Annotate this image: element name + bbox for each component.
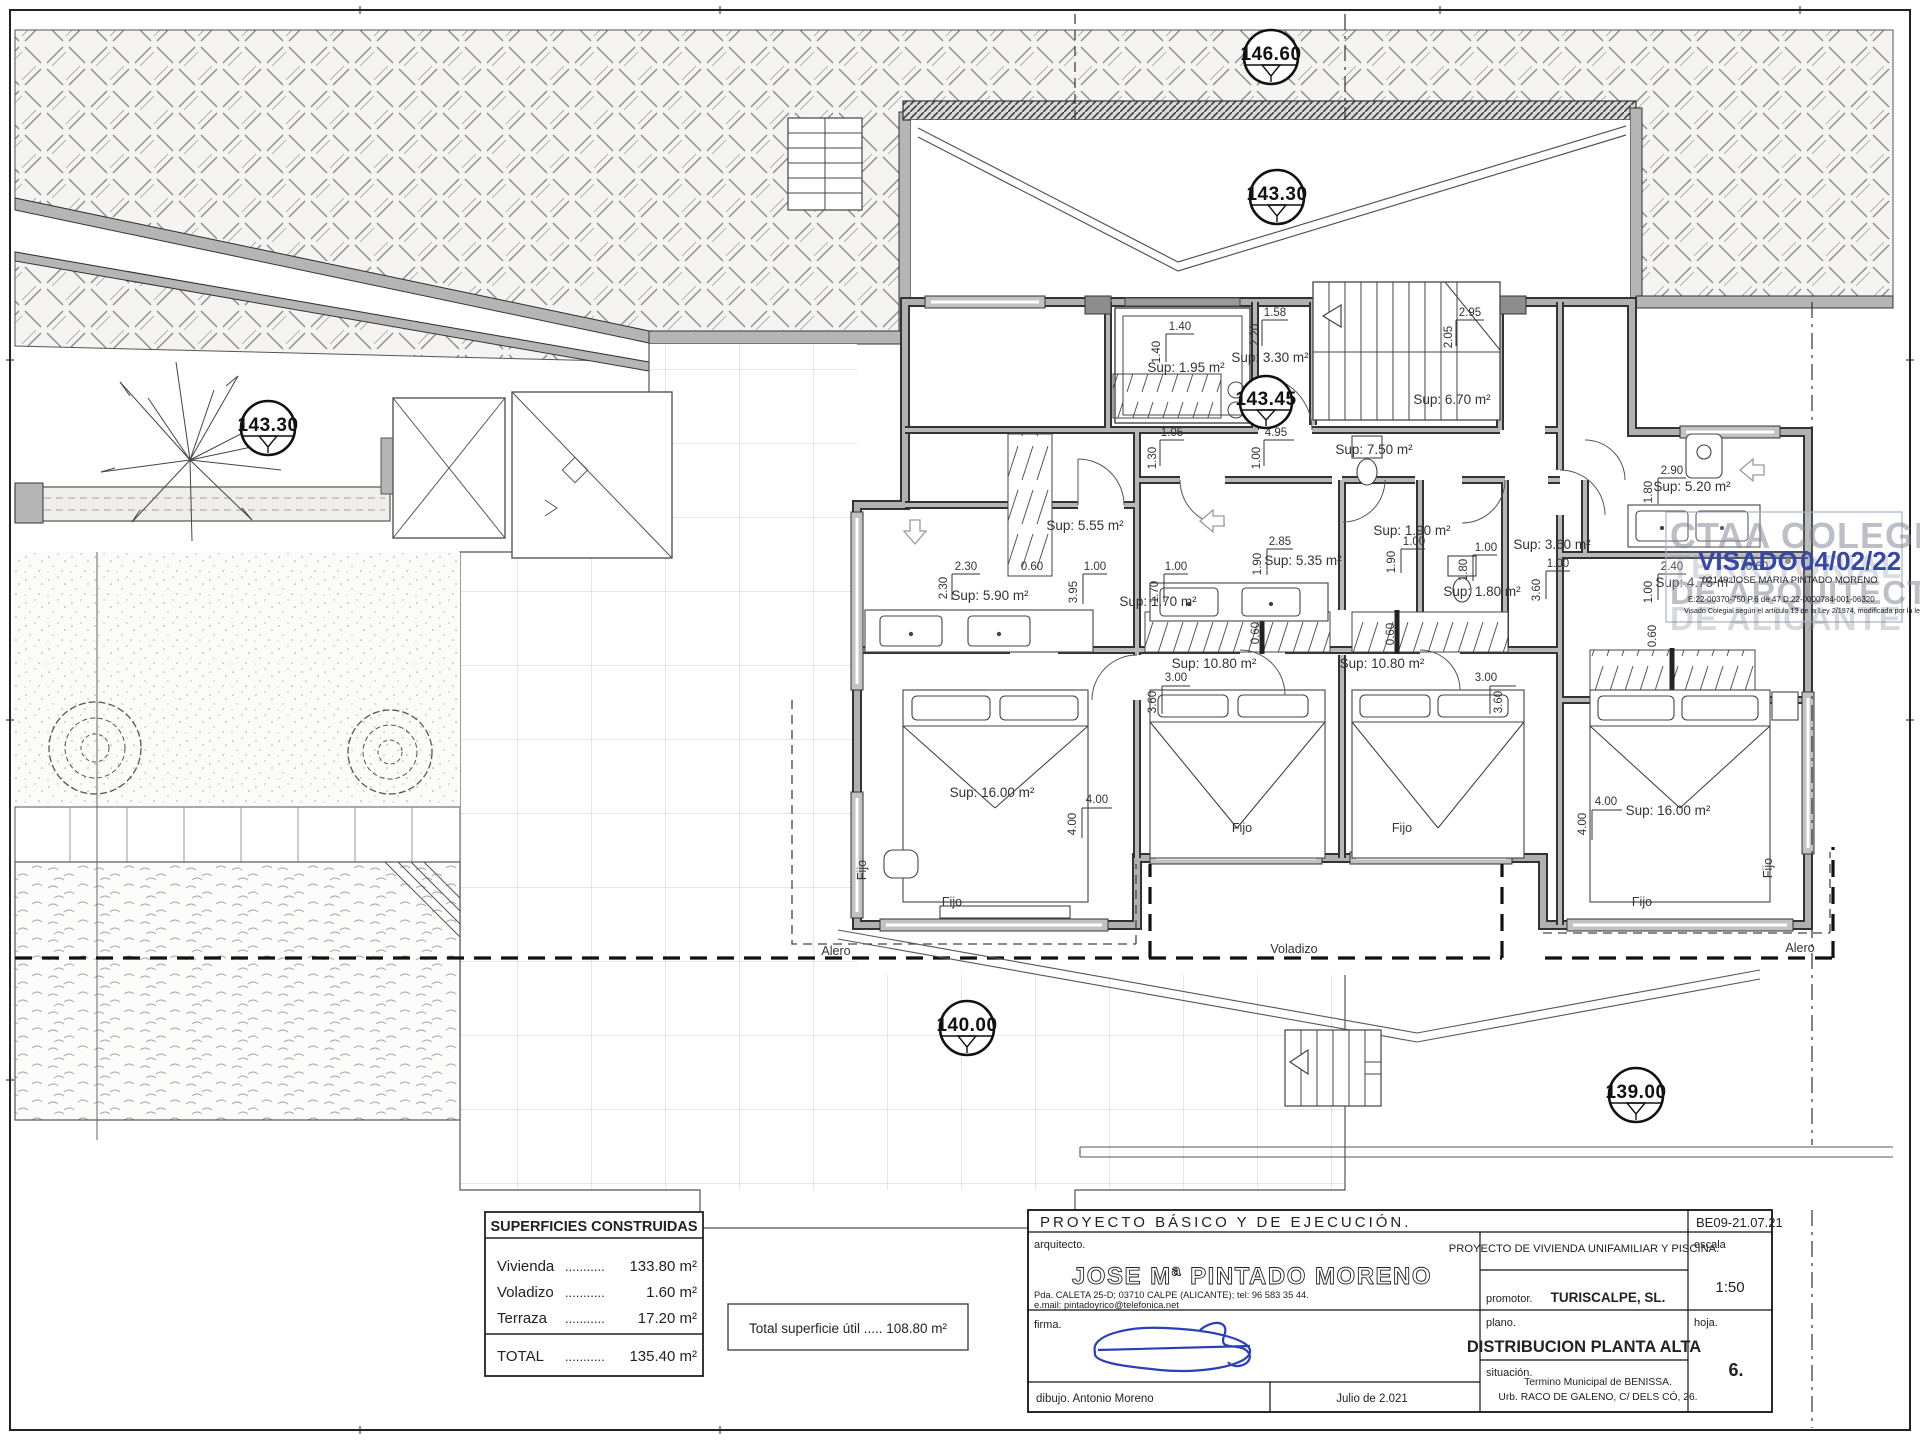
visado-date: 04/02/22 xyxy=(1800,546,1901,576)
surfaces-row-value: 133.80 m² xyxy=(629,1258,697,1275)
voladizo-label: Voladizo xyxy=(1270,942,1317,956)
fijo-label: Fijo xyxy=(1761,858,1775,878)
alero-label: Alero xyxy=(1785,941,1814,955)
project-code: BE09-21.07.21 xyxy=(1696,1215,1783,1230)
promoter-name: TURISCALPE, SL. xyxy=(1551,1290,1666,1305)
surfaces-total-value: 135.40 m² xyxy=(629,1348,697,1365)
room-label: Sup: 16.00 m² xyxy=(950,785,1035,800)
dim-label: 2.85 xyxy=(1269,536,1291,548)
dim-label: 1.00 xyxy=(1084,561,1106,573)
entry-stair xyxy=(788,118,862,210)
dim-label: 3.60 xyxy=(1147,691,1159,713)
stamp-colegiado: 02149 JOSE MARIA PINTADO MORENO xyxy=(1702,575,1878,586)
dim-label: 0.60 xyxy=(1021,561,1043,573)
architect-email: e.mail: pintadoyrico@telefonica.net xyxy=(1034,1300,1179,1310)
promoter-label: promotor. xyxy=(1486,1293,1532,1305)
room-label: Sup: 5.55 m² xyxy=(1046,518,1124,533)
dim-label: 3.95 xyxy=(1068,581,1080,603)
plano-label: plano. xyxy=(1486,1317,1516,1329)
signature-label: firma. xyxy=(1034,1319,1062,1331)
dim-label: 1.90 xyxy=(1252,553,1264,575)
dim-label: 2.90 xyxy=(1661,465,1683,477)
stone-wall xyxy=(15,483,390,523)
room-label: Sup: 5.20 m² xyxy=(1653,479,1731,494)
title-block: PROYECTO BÁSICO Y DE EJECUCIÓN. BE09-21.… xyxy=(1028,1210,1783,1412)
svg-text:143.45: 143.45 xyxy=(1235,389,1296,410)
room-label: Sup: 1.90 m² xyxy=(1373,523,1451,538)
dim-label: 3.00 xyxy=(1165,672,1187,684)
bed-mid-right xyxy=(1352,690,1524,858)
pool-water xyxy=(15,862,460,1120)
dim-label: 4.00 xyxy=(1595,796,1617,808)
dibujo-credit: dibujo. Antonio Moreno xyxy=(1036,1393,1154,1405)
dim-label: 3.60 xyxy=(1531,579,1543,601)
surfaces-row-dots: ........... xyxy=(565,1259,605,1274)
dim-label: 3.60 xyxy=(1493,691,1505,713)
fijo-label: Fijo xyxy=(855,860,869,880)
fijo-label: Fijo xyxy=(1232,821,1252,835)
roof-area xyxy=(788,118,1630,300)
surfaces-title: SUPERFICIES CONSTRUIDAS xyxy=(490,1219,697,1235)
surfaces-row-label: Vivienda xyxy=(497,1258,555,1275)
dim-label: 1.00 xyxy=(1251,447,1263,469)
svg-text:140.00: 140.00 xyxy=(936,1015,997,1036)
scale-value: 1:50 xyxy=(1715,1279,1744,1296)
scale-label: escala xyxy=(1694,1239,1727,1251)
dim-label: 4.00 xyxy=(1067,813,1079,835)
fecha: Julio de 2.021 xyxy=(1336,1393,1408,1405)
dim-label: 1.00 xyxy=(1475,542,1497,554)
skylight-squares xyxy=(381,392,672,558)
drawing-sheet: 1.40 1.40 1.58 2.20 2.95 2.05 1.05 4.95 … xyxy=(0,0,1920,1440)
dim-label: 1.30 xyxy=(1147,447,1159,469)
visado-label: VISADO . xyxy=(1698,546,1812,576)
surfaces-row-label: Terraza xyxy=(497,1310,548,1327)
room-label: Sup: 5.35 m² xyxy=(1264,553,1342,568)
room-label: Sup: 1.70 m² xyxy=(1119,594,1197,609)
floor-plan-svg: 1.40 1.40 1.58 2.20 2.95 2.05 1.05 4.95 … xyxy=(0,0,1920,1440)
room-label: Sup: 10.80 m² xyxy=(1172,656,1257,671)
dim-label: 1.05 xyxy=(1161,427,1183,439)
surfaces-total-label: TOTAL xyxy=(497,1348,544,1365)
total-util-box: Total superficie útil ..... 108.80 m² xyxy=(728,1304,968,1350)
dim-label: 0.60 xyxy=(1647,625,1659,647)
surfaces-table: SUPERFICIES CONSTRUIDAS Vivienda .......… xyxy=(485,1212,703,1376)
room-label: Sup: 6.70 m² xyxy=(1413,392,1491,407)
surfaces-row-dots: ........... xyxy=(565,1311,605,1326)
stamp-legal: Visado Colegial según el artículo 13 de … xyxy=(1684,606,1920,615)
dim-label: 4.00 xyxy=(1086,794,1108,806)
hoja-label: hoja. xyxy=(1694,1317,1718,1329)
alero-label: Alero xyxy=(821,944,850,958)
svg-text:146.60: 146.60 xyxy=(1240,44,1301,65)
room-label: Sup: 5.90 m² xyxy=(951,588,1029,603)
stamp-codes: E:22-00370-750 P.6 de 47 D:22-0000784-00… xyxy=(1688,595,1875,604)
bed-left xyxy=(884,690,1088,918)
dim-label: 2.95 xyxy=(1459,307,1481,319)
room-label: Sup: 7.50 m² xyxy=(1335,442,1413,457)
stamp-dot-icon xyxy=(1785,558,1791,564)
dim-label: 2.05 xyxy=(1443,326,1455,348)
surfaces-row-value: 1.60 m² xyxy=(646,1284,697,1301)
dim-label: 0.60 xyxy=(1250,622,1262,644)
dim-label: 1.58 xyxy=(1264,307,1286,319)
project-desc: PROYECTO DE VIVIENDA UNIFAMILIAR Y PISCI… xyxy=(1449,1243,1719,1255)
svg-text:139.00: 139.00 xyxy=(1605,1082,1666,1103)
dim-label: 1.00 xyxy=(1547,558,1569,570)
total-util-text: Total superficie útil ..... 108.80 m² xyxy=(749,1321,948,1336)
dim-label: 1.00 xyxy=(1165,561,1187,573)
fijo-label: Fijo xyxy=(1632,895,1652,909)
dim-label: 4.00 xyxy=(1577,813,1589,835)
paver-band xyxy=(15,807,460,862)
situacion-line2: Urb. RACO DE GALENO, C/ DELS CÓ, 26. xyxy=(1498,1390,1697,1403)
surfaces-row-value: 17.20 m² xyxy=(638,1310,697,1327)
room-label: Sup: 1.95 m² xyxy=(1147,360,1225,375)
hoja-number: 6. xyxy=(1728,1360,1743,1380)
dim-label: 3.00 xyxy=(1475,672,1497,684)
dim-label: 1.40 xyxy=(1169,321,1191,333)
garden-zone xyxy=(15,552,460,1140)
vanity-left xyxy=(865,610,1093,652)
surfaces-row-label: Voladizo xyxy=(497,1284,554,1301)
lower-stairs xyxy=(1285,1030,1381,1106)
visa-stamp: CTAA COLEGIO TERRITORIAL DE ARQUITECTOS … xyxy=(1666,512,1920,637)
room-label: Sup: 10.80 m² xyxy=(1340,656,1425,671)
dim-label: 1.80 xyxy=(1458,559,1470,581)
dim-label: 2.30 xyxy=(938,577,950,599)
fijo-label: Fijo xyxy=(1392,821,1412,835)
dim-label: 2.30 xyxy=(955,561,977,573)
dim-label: 1.90 xyxy=(1386,551,1398,573)
svg-text:143.30: 143.30 xyxy=(237,415,298,436)
dim-label: 2.20 xyxy=(1250,324,1262,346)
fijo-label: Fijo xyxy=(942,895,962,909)
dim-label: 1.00 xyxy=(1643,581,1655,603)
room-label: Sup: 16.00 m² xyxy=(1626,803,1711,818)
surfaces-row-dots: ........... xyxy=(565,1285,605,1300)
project-title: PROYECTO BÁSICO Y DE EJECUCIÓN. xyxy=(1040,1214,1411,1231)
situacion-line1: Termino Municipal de BENISSA. xyxy=(1524,1377,1672,1388)
room-label: Sup: 3.30 m² xyxy=(1231,350,1309,365)
dim-label: 0.60 xyxy=(1385,623,1397,645)
surfaces-total-dots: ........... xyxy=(565,1349,605,1364)
room-label: Sup: 3.60 m² xyxy=(1513,537,1591,552)
svg-text:143.30: 143.30 xyxy=(1246,184,1307,205)
architect-address: Pda. CALETA 25-D; 03710 CALPE (ALICANTE)… xyxy=(1034,1290,1309,1300)
architect-label: arquitecto. xyxy=(1034,1239,1085,1251)
plano-title: DISTRIBUCION PLANTA ALTA xyxy=(1467,1338,1701,1356)
room-label: Sup: 1.80 m² xyxy=(1443,584,1521,599)
bathtub-icon xyxy=(1686,434,1722,478)
architect-name: JOSE Mª PINTADO MORENO xyxy=(1072,1263,1432,1290)
